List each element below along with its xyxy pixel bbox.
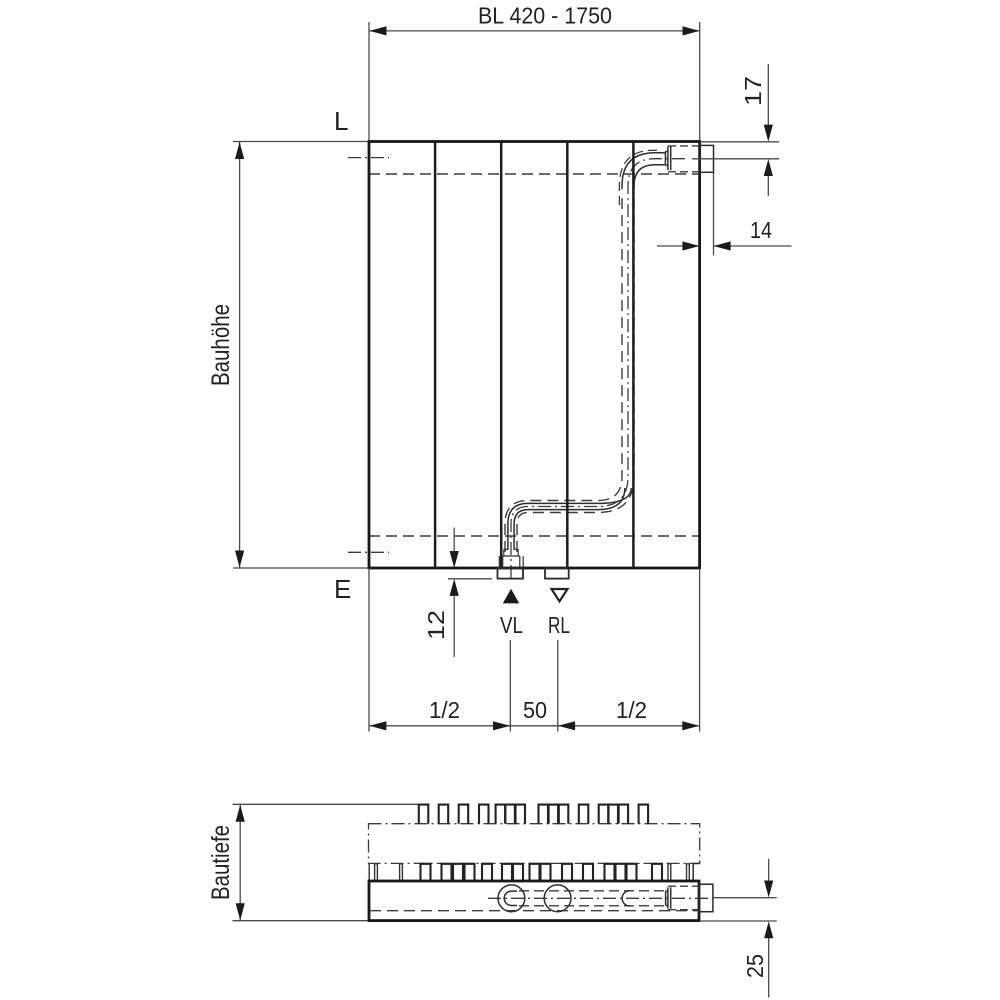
- svg-text:Bauhöhe: Bauhöhe: [207, 304, 235, 386]
- svg-text:1/2: 1/2: [616, 697, 647, 723]
- svg-text:25: 25: [742, 954, 768, 978]
- svg-text:BL 420 - 1750: BL 420 - 1750: [478, 3, 612, 29]
- svg-text:14: 14: [750, 217, 772, 243]
- svg-text:50: 50: [523, 697, 547, 723]
- svg-text:RL: RL: [548, 612, 570, 638]
- svg-text:1/2: 1/2: [429, 697, 460, 723]
- svg-text:L: L: [334, 106, 348, 136]
- svg-text:E: E: [334, 574, 351, 604]
- svg-text:VL: VL: [500, 612, 523, 638]
- svg-text:Bautiefe: Bautiefe: [207, 825, 235, 900]
- svg-text:12: 12: [423, 610, 449, 640]
- svg-text:17: 17: [740, 76, 766, 106]
